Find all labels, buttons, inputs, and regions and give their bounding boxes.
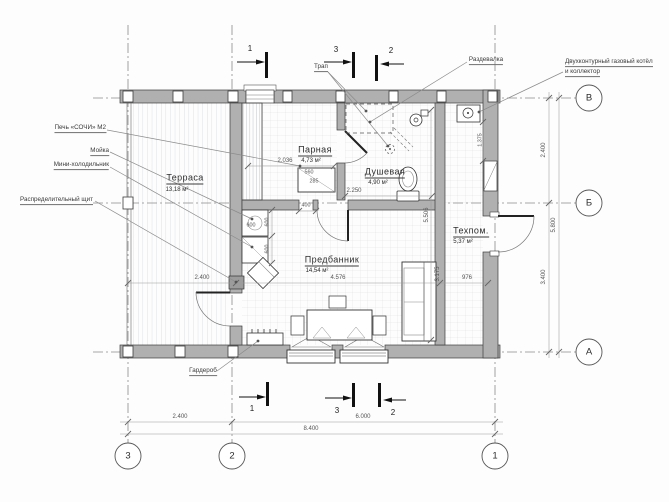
dim-sofa-length: 3.175 (435, 266, 441, 281)
axis-row-b: Б (586, 198, 592, 208)
callout-boiler-line1: Двухконтурный газовый котёл (565, 59, 653, 67)
gas-boiler (457, 105, 480, 122)
room-area-tehpom: 5,37 м² (453, 239, 472, 245)
dim-fridge-depth: 600 (265, 245, 270, 254)
dim-stove-opening: 400 (302, 203, 311, 208)
section-bottom-2: 2 (391, 409, 395, 417)
axis-row-v: В (586, 93, 592, 103)
callout-panel: Распределительный щит (20, 197, 93, 205)
dim-right-total: 5.800 (551, 217, 557, 232)
window-east (484, 161, 497, 191)
sauna-bench (242, 103, 262, 200)
dim-sink-depth: 600 (265, 218, 270, 227)
callout-stove: Печь «СОЧИ» М2 (54, 125, 106, 133)
dim-predbannik-width: 4.576 (330, 275, 345, 281)
dim-boiler-offset: 1.375 (478, 133, 483, 147)
room-area-predbannik: 14,54 м² (306, 268, 329, 274)
callout-fridge: Мини-холодильник (54, 162, 109, 170)
floor-plan-canvas: Терраса 13,18 м² Парная 4,73 м² Душевая … (0, 0, 669, 502)
room-label-predbannik: Предбанник (305, 256, 359, 267)
dim-bottom-total: 8.400 (303, 426, 318, 432)
room-area-terrace: 13,18 м² (166, 187, 189, 193)
dim-tehpom-width: 976 (462, 275, 472, 281)
dim-terrace-width: 2.400 (194, 275, 209, 281)
section-bottom-3: 3 (335, 407, 339, 415)
room-area-parnaya: 4,73 м² (301, 158, 320, 164)
room-label-terrace: Терраса (166, 174, 203, 185)
axis-row-a: А (586, 347, 592, 357)
axis-col-2: 2 (229, 451, 234, 461)
room-label-tehpom: Техпом. (453, 227, 489, 238)
dim-right-seg2: 3.400 (541, 269, 547, 284)
axis-col-1: 1 (492, 451, 497, 461)
callout-dressing: Раздевалка (469, 57, 503, 65)
dim-right-seg1: 2.400 (541, 142, 547, 157)
dim-dushevaya-width: 2.250 (346, 188, 361, 194)
dim-parnaya-width: 2.036 (277, 158, 292, 164)
dim-stove-depth: 285 (310, 179, 319, 184)
callout-boiler-line2: и коллектор (565, 69, 600, 77)
dim-sink-width: 600 (247, 223, 256, 228)
room-area-dushevaya: 4,90 м² (368, 180, 387, 186)
callout-drain: Трап (314, 64, 328, 72)
window-north (244, 85, 276, 103)
dim-tehpom-length: 5.506 (424, 207, 430, 222)
axis-col-3: 3 (125, 451, 130, 461)
section-bottom-1: 1 (250, 405, 254, 413)
room-label-dushevaya: Душевая (365, 168, 405, 179)
dim-bottom-seg1: 2.400 (172, 414, 187, 420)
dim-stove-width: 560 (305, 170, 314, 175)
section-top-3: 3 (334, 46, 338, 54)
room-label-parnaya: Парная (298, 146, 332, 157)
dim-bottom-seg2: 6.000 (355, 414, 370, 420)
callout-wardrobe: Гардероб (189, 368, 217, 376)
section-top-2: 2 (389, 47, 393, 55)
section-top-1: 1 (248, 45, 252, 53)
callout-sink: Мойка (90, 148, 109, 156)
door-tehpom-exterior (490, 212, 534, 256)
